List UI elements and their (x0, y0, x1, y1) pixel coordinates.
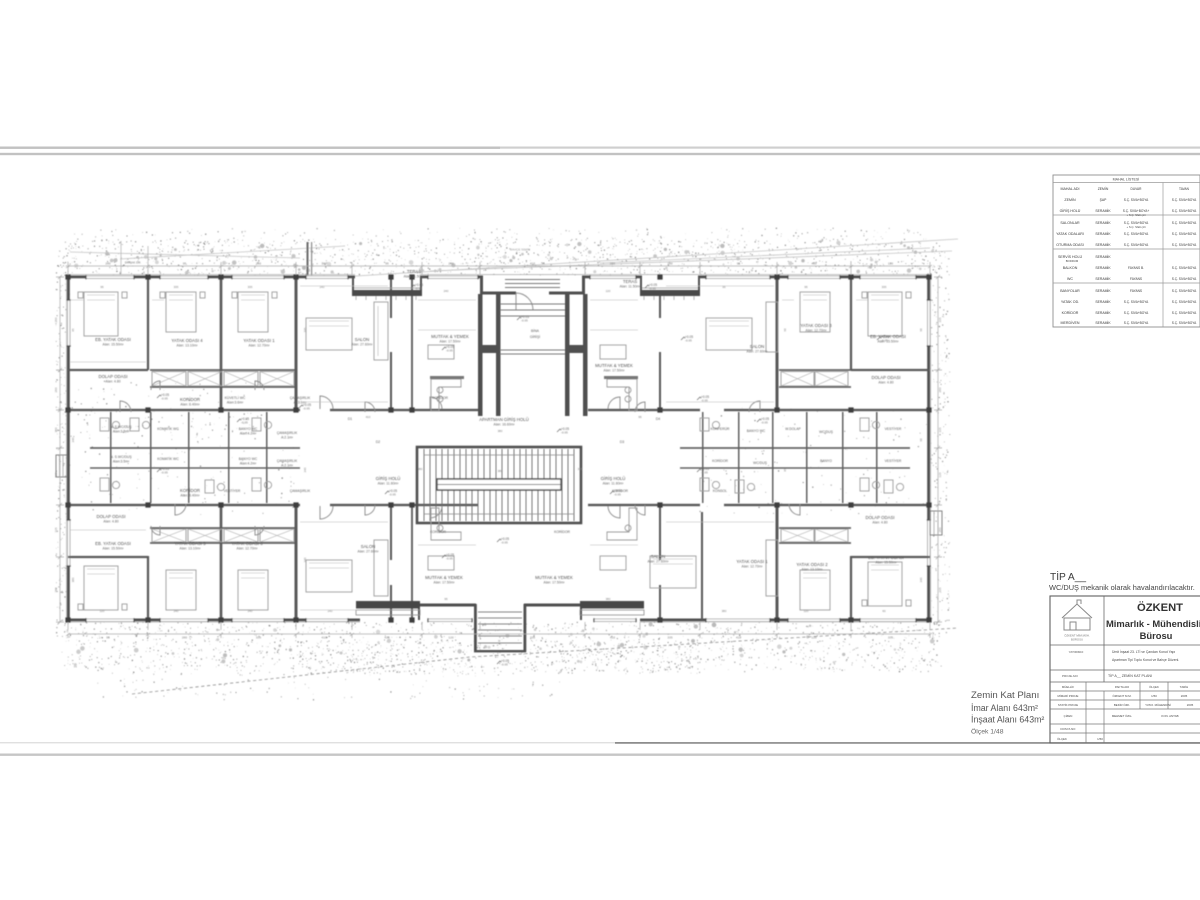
svg-text:280: 280 (448, 262, 453, 266)
svg-text:410: 410 (530, 262, 535, 266)
svg-text:335: 335 (256, 636, 261, 640)
svg-text:280: 280 (256, 262, 261, 266)
svg-text:280: 280 (610, 262, 615, 266)
svg-text:95: 95 (385, 262, 389, 266)
svg-text:95: 95 (183, 262, 187, 266)
svg-text:410: 410 (384, 636, 389, 640)
svg-text:120: 120 (448, 636, 453, 640)
svg-text:95: 95 (106, 636, 110, 640)
svg-text:410: 410 (610, 636, 615, 640)
svg-text:280: 280 (182, 636, 187, 640)
svg-text:410: 410 (321, 636, 326, 640)
svg-text:335: 335 (530, 636, 535, 640)
svg-text:280: 280 (105, 262, 110, 266)
svg-text:380: 380 (321, 262, 326, 266)
